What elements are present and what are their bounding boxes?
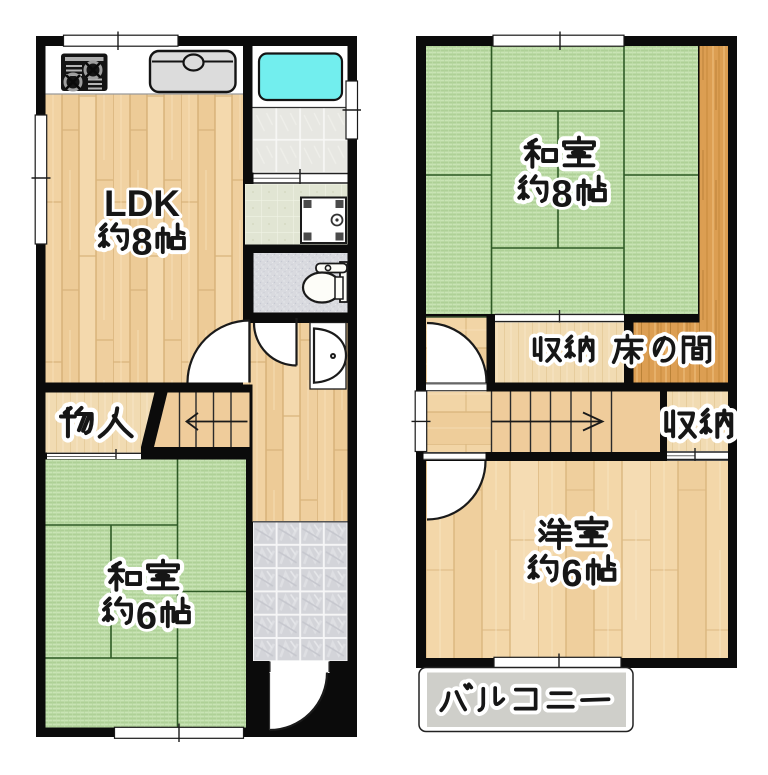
svg-text:6: 6: [136, 596, 157, 638]
svg-text:8: 8: [551, 174, 572, 216]
svg-text:6: 6: [561, 553, 582, 595]
svg-text:8: 8: [131, 222, 152, 264]
svg-text:LDK: LDK: [104, 183, 180, 224]
